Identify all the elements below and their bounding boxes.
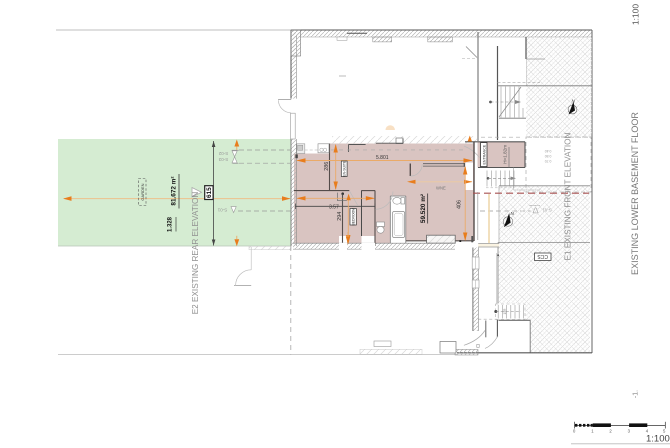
svg-text:E2 EXISTING REAR ELEVATION: E2 EXISTING REAR ELEVATION [191,192,200,315]
svg-text:0.40: 0.40 [545,149,552,153]
svg-text:EXISTING LOWER BASEMENT FLOOR: EXISTING LOWER BASEMENT FLOOR [630,112,640,275]
svg-text:GARDEN: GARDEN [140,183,145,200]
svg-text:15R: 15R [503,308,507,315]
svg-text:0.50: 0.50 [545,154,552,158]
svg-text:1:100: 1:100 [631,4,641,25]
svg-text:S-01: S-01 [217,208,227,213]
svg-text:BEDROOM: BEDROOM [352,208,356,226]
svg-text:615: 615 [206,187,213,198]
svg-text:0.70: 0.70 [545,159,552,163]
svg-text:406: 406 [456,200,462,209]
svg-text:H=1.82m: H=1.82m [503,145,508,164]
svg-text:286: 286 [324,162,330,171]
svg-text:S-03: S-03 [218,157,228,162]
svg-text:E1 EXISTING FRONT ELEVATION: E1 EXISTING FRONT ELEVATION [564,132,573,260]
svg-text:81.672 m²: 81.672 m² [171,176,178,205]
svg-text:WNE: WNE [436,186,446,191]
svg-text:S-02: S-02 [218,151,228,156]
svg-text:ENTRANCE: ENTRANCE [483,144,487,164]
svg-text:CCS: CCS [537,253,548,259]
svg-text:1:100: 1:100 [646,434,670,445]
svg-text:294: 294 [337,212,343,221]
svg-text:59.520 m²: 59.520 m² [420,194,427,223]
svg-text:-1.: -1. [633,390,640,398]
svg-text:3.57: 3.57 [329,205,339,211]
svg-text:EN-SUITE: EN-SUITE [343,160,347,177]
svg-text:N: N [511,211,515,217]
svg-text:5.801: 5.801 [376,155,389,161]
svg-text:1.328: 1.328 [168,216,174,232]
